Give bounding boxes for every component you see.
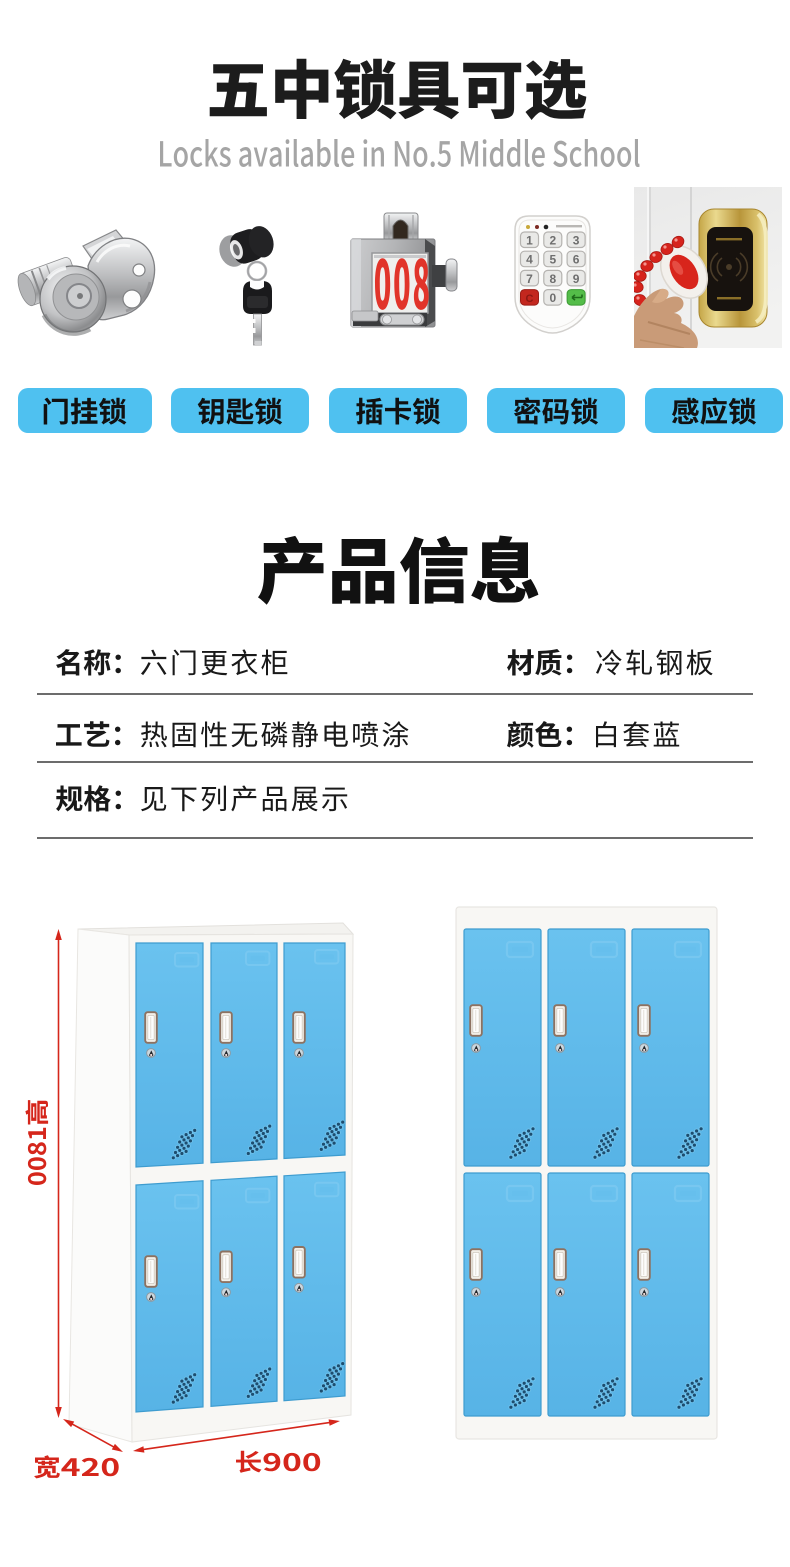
svg-text:3: 3 [573, 234, 580, 248]
svg-text:0: 0 [549, 291, 556, 305]
svg-text:7: 7 [526, 272, 533, 286]
svg-text:1: 1 [526, 234, 533, 248]
svg-text:5: 5 [549, 253, 556, 267]
svg-text:C: C [526, 293, 534, 305]
svg-text:8: 8 [549, 272, 556, 286]
svg-text:4: 4 [526, 253, 533, 267]
svg-text:6: 6 [573, 253, 580, 267]
svg-text:9: 9 [573, 272, 580, 286]
svg-text:2: 2 [549, 234, 556, 248]
